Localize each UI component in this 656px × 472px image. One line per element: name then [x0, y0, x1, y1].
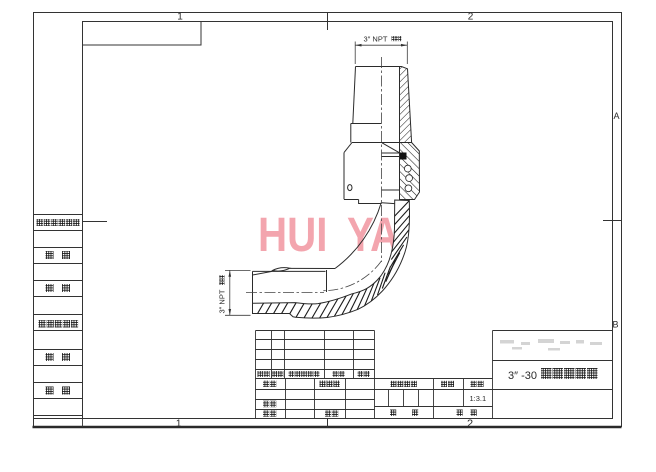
svg-text:1:3.1: 1:3.1	[469, 394, 486, 403]
svg-text:A: A	[613, 111, 619, 121]
svg-text:3″ -30: 3″ -30	[508, 370, 537, 382]
svg-text:B: B	[612, 320, 618, 330]
svg-text:2: 2	[468, 12, 474, 23]
svg-text:HUI: HUI	[258, 209, 327, 262]
svg-text:1: 1	[177, 12, 183, 23]
svg-text:1: 1	[176, 419, 182, 430]
svg-text:3″ NPT: 3″ NPT	[218, 289, 227, 313]
svg-text:3″ NPT: 3″ NPT	[364, 34, 388, 43]
svg-text:2: 2	[467, 418, 473, 430]
